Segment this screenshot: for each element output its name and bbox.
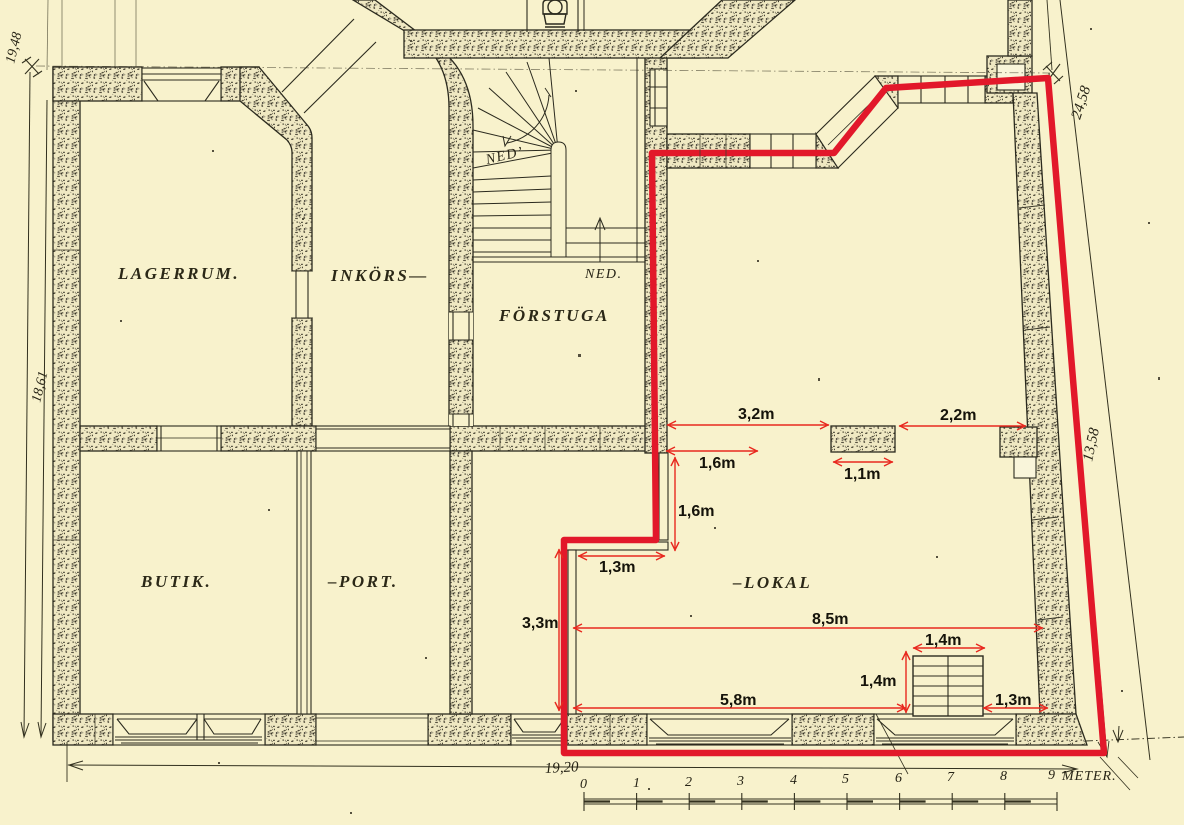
svg-text:3,3m: 3,3m xyxy=(522,615,558,632)
svg-text:9: 9 xyxy=(1048,768,1055,783)
svg-text:1,4m: 1,4m xyxy=(860,673,896,690)
svg-text:1,3m: 1,3m xyxy=(599,559,635,576)
svg-text:–LOKAL: –LOKAL xyxy=(732,573,812,592)
svg-text:1,6m: 1,6m xyxy=(678,503,714,520)
svg-text:19,20: 19,20 xyxy=(544,759,579,777)
svg-text:2,2m: 2,2m xyxy=(940,407,976,424)
svg-text:1,4m: 1,4m xyxy=(925,632,961,649)
svg-text:FÖRSTUGA: FÖRSTUGA xyxy=(498,306,610,325)
svg-text:0: 0 xyxy=(580,777,587,792)
svg-text:1,6m: 1,6m xyxy=(699,455,735,472)
svg-text:NED.: NED. xyxy=(584,267,623,282)
svg-text:INKÖRS—: INKÖRS— xyxy=(330,266,429,285)
svg-text:6: 6 xyxy=(895,771,902,786)
svg-text:5: 5 xyxy=(842,772,849,787)
svg-text:4: 4 xyxy=(790,773,797,788)
svg-text:1,1m: 1,1m xyxy=(844,466,880,483)
svg-text:2: 2 xyxy=(685,775,692,790)
svg-text:1,3m: 1,3m xyxy=(995,692,1031,709)
svg-text:METER.: METER. xyxy=(1061,769,1117,784)
svg-text:8,5m: 8,5m xyxy=(812,611,848,628)
svg-text:8: 8 xyxy=(1000,769,1007,784)
svg-text:LAGERRUM.: LAGERRUM. xyxy=(117,264,240,283)
svg-text:3: 3 xyxy=(736,774,744,789)
svg-text:BUTIK.: BUTIK. xyxy=(140,572,212,591)
svg-text:1: 1 xyxy=(633,776,640,791)
svg-text:–PORT.: –PORT. xyxy=(327,572,399,591)
svg-text:3,2m: 3,2m xyxy=(738,406,774,423)
svg-text:5,8m: 5,8m xyxy=(720,692,756,709)
svg-text:7: 7 xyxy=(947,770,955,785)
